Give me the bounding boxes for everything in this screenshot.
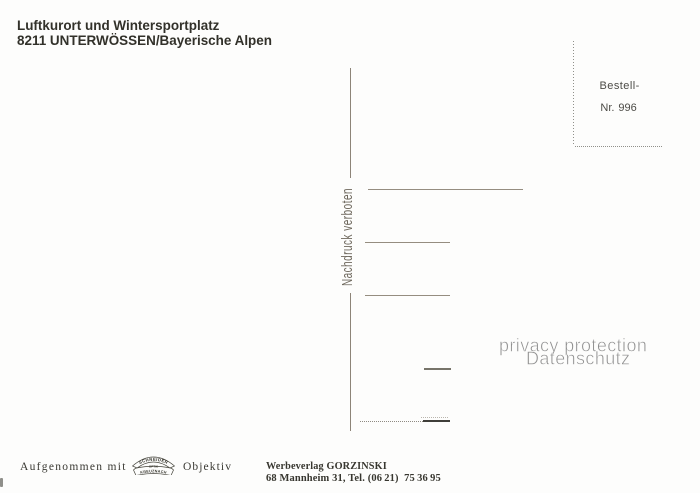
- svg-text:KREUZNACH: KREUZNACH: [140, 469, 167, 474]
- svg-text:OPTIK: OPTIK: [149, 465, 159, 469]
- svg-text:Datenschutz: Datenschutz: [526, 348, 630, 368]
- svg-text:SCHNEIDER: SCHNEIDER: [138, 457, 169, 465]
